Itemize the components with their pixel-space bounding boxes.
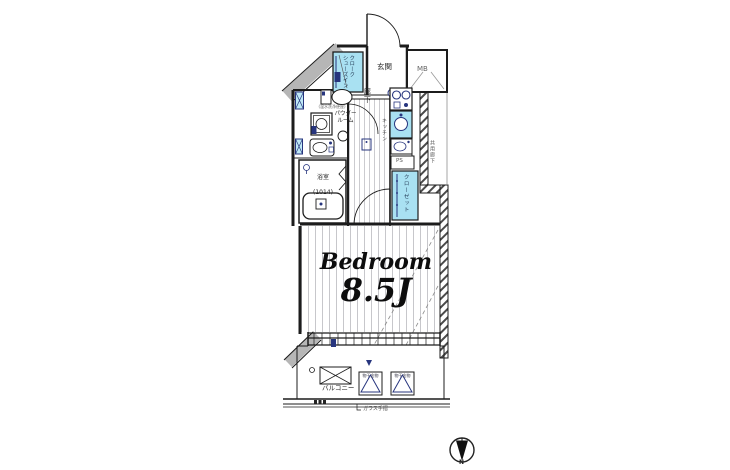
bedroom-door <box>354 189 390 225</box>
meter-box-label: MB <box>417 65 428 73</box>
balcony-label: バルコニー <box>322 385 354 393</box>
kitchen-label: キッチン <box>381 118 387 148</box>
shoe-closet-label: シューズインクローク <box>341 55 354 91</box>
entrance-door <box>367 14 400 97</box>
refrigerator-space <box>362 139 371 150</box>
glass-rail-label: ガラス手摺 <box>363 406 388 412</box>
kitchen-unit <box>390 88 412 154</box>
washing-machine <box>311 113 332 135</box>
compass-north-label: N <box>459 459 464 466</box>
laundry-bracket-label-2: 物干金物 <box>391 374 414 379</box>
common-corridor-label: 共用廊下 <box>429 140 435 170</box>
bathroom-label: 浴室 (1014) <box>305 167 341 196</box>
left-windows <box>296 92 304 154</box>
toilet <box>321 90 352 105</box>
washbasin <box>310 139 334 156</box>
floorplan-page: シューズインクローク 玄関 MB 廊下 (温水洗浄便座) パウダールーム 浴室 … <box>0 0 730 470</box>
closet-label: クローゼット <box>402 174 409 220</box>
bedroom-window <box>308 332 440 347</box>
powder-room-label: パウダールーム <box>332 111 359 124</box>
corridor-label: 廊下 <box>363 88 371 114</box>
laundry-bracket-label-1: 物干金物 <box>359 374 382 379</box>
powder-stool <box>338 131 348 141</box>
bathroom-name: 浴室 <box>317 174 329 181</box>
floorplan-linework <box>0 0 730 470</box>
bathroom-size: (1014) <box>313 189 333 196</box>
pipe-space-label: PS <box>396 158 403 165</box>
entrance-label: 玄関 <box>377 62 392 71</box>
toilet-note-label: (温水洗浄便座) <box>312 105 352 110</box>
bedroom-size-label: 8.5J <box>316 271 436 309</box>
